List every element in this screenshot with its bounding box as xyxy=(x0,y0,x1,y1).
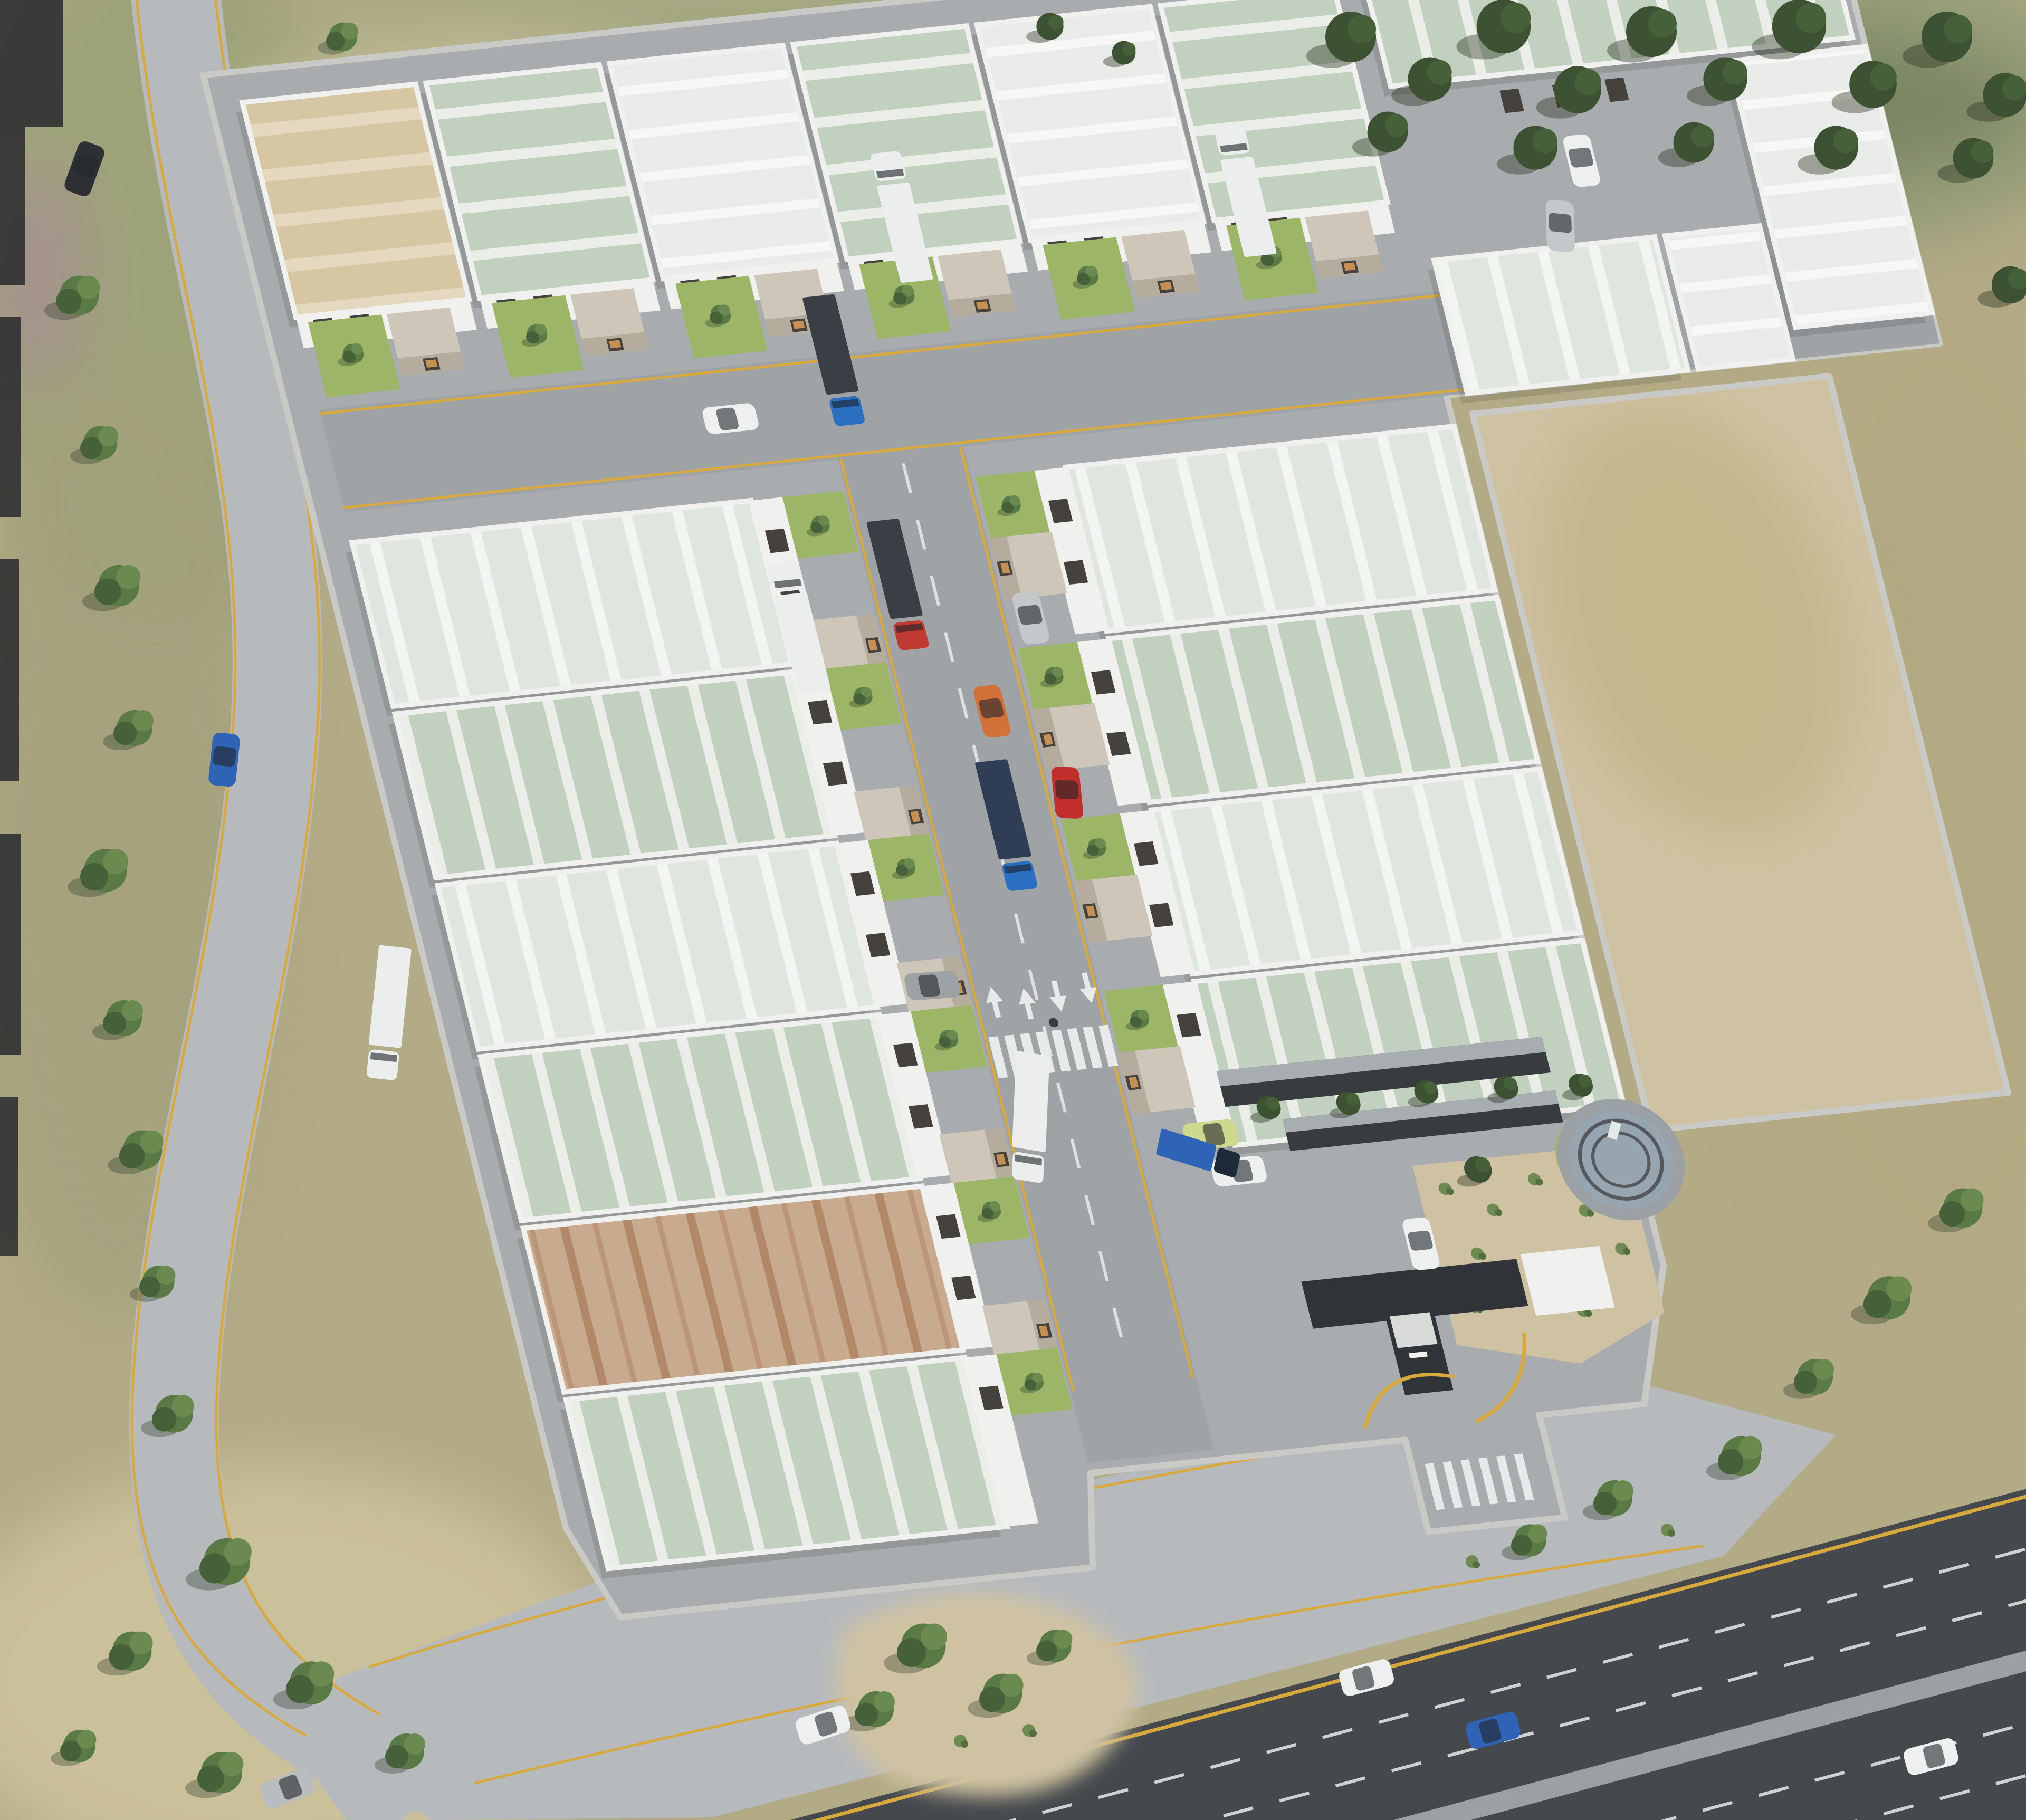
gate-side-building xyxy=(1521,1246,1614,1316)
pickup-gray xyxy=(903,970,962,1001)
car-blue xyxy=(208,732,241,788)
scene-canvas xyxy=(0,0,2026,1820)
semi-truck-white xyxy=(1011,1050,1050,1184)
warehouse-roof xyxy=(1434,237,1688,393)
car-silver xyxy=(1545,199,1575,253)
car-red xyxy=(1050,767,1084,819)
gate-tower-roof xyxy=(1390,1312,1438,1348)
car-white xyxy=(701,403,760,435)
aerial-render xyxy=(0,0,2026,1820)
